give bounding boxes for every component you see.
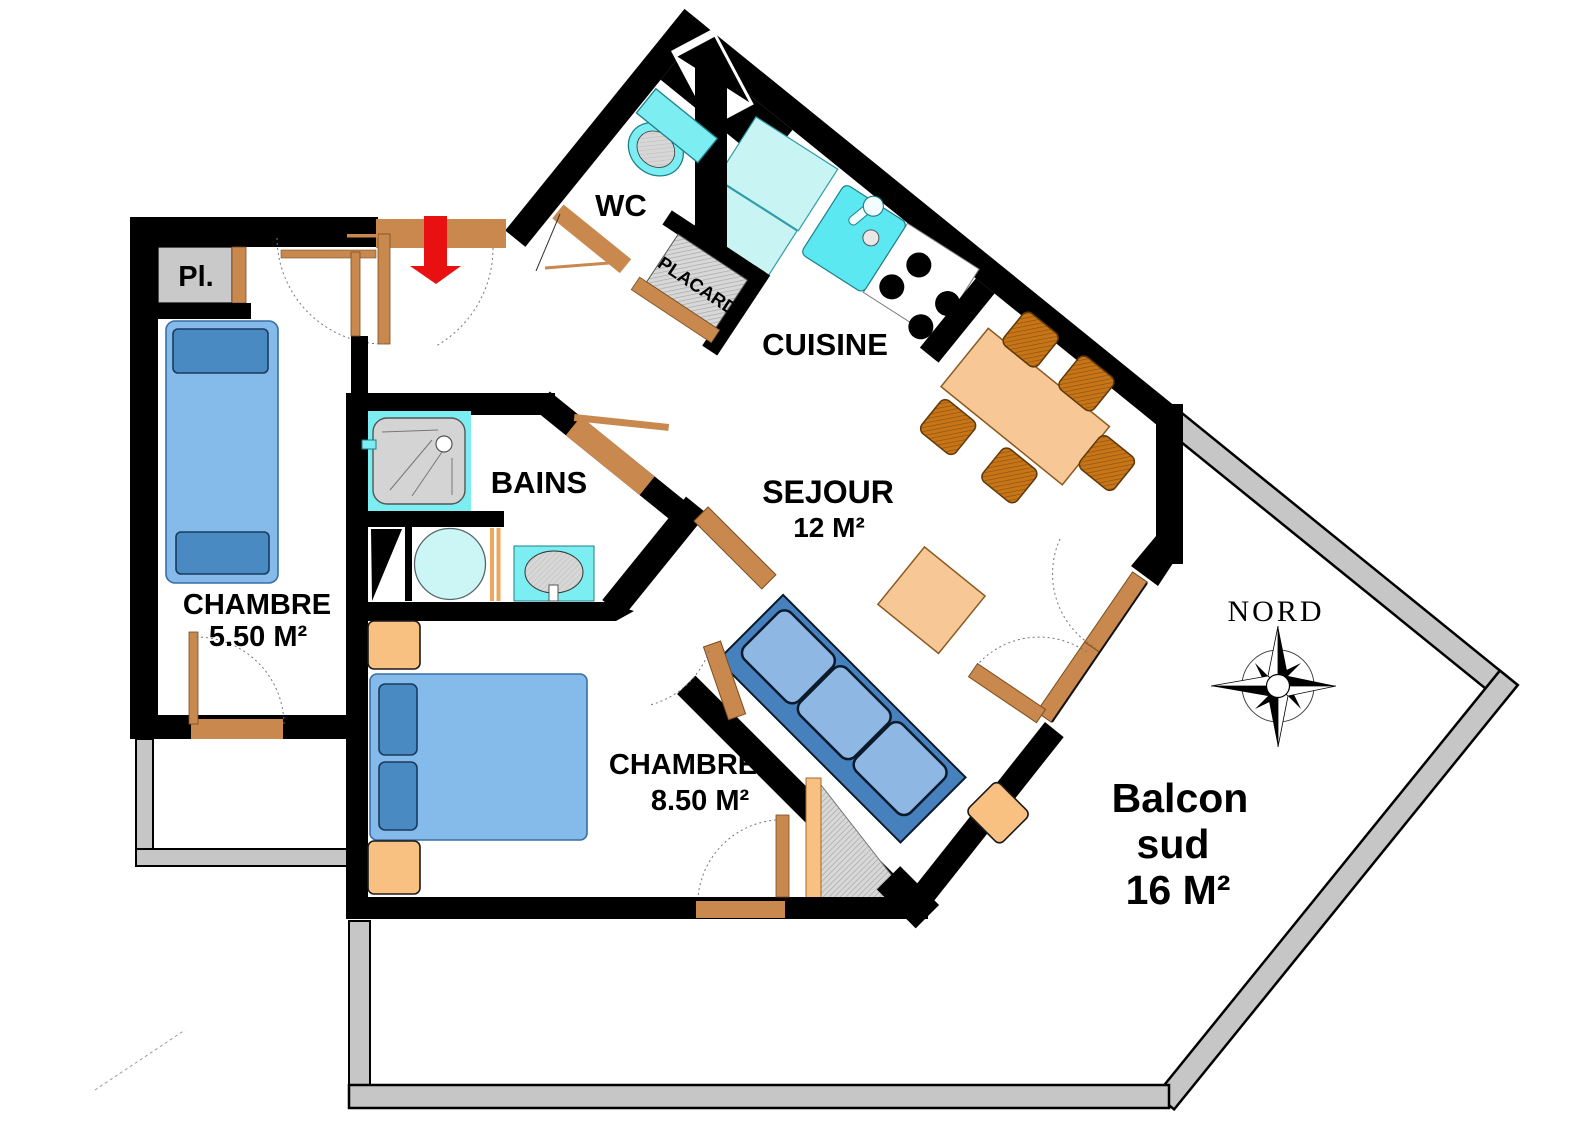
svg-text:BAINS: BAINS <box>491 465 587 500</box>
svg-text:12 M²: 12 M² <box>793 512 865 543</box>
svg-text:SEJOUR: SEJOUR <box>762 474 894 510</box>
svg-text:16 M²: 16 M² <box>1126 867 1231 913</box>
svg-text:NORD: NORD <box>1227 595 1324 628</box>
svg-text:CHAMBRE: CHAMBRE <box>609 749 757 781</box>
svg-text:WC: WC <box>595 188 647 223</box>
svg-text:Balcon: Balcon <box>1112 775 1249 821</box>
svg-text:CUISINE: CUISINE <box>762 327 888 362</box>
svg-text:5.50 M²: 5.50 M² <box>209 621 308 653</box>
svg-text:8.50 M²: 8.50 M² <box>651 785 750 817</box>
svg-text:Pl.: Pl. <box>178 261 213 293</box>
svg-text:sud: sud <box>1137 821 1210 867</box>
svg-text:CHAMBRE: CHAMBRE <box>183 589 331 621</box>
